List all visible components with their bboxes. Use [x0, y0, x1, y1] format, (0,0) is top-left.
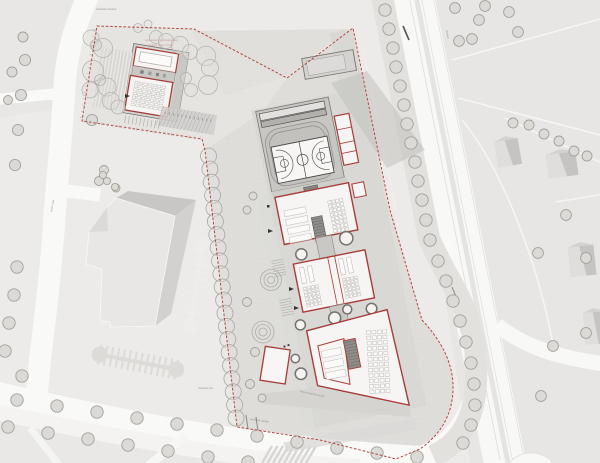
svg-text:xxxxxxxx xxx: xxxxxxxx xxx [198, 387, 214, 390]
svg-text:xxxxxxx xxxxxx: xxxxxxx xxxxxx [96, 7, 117, 11]
svg-text:xxxx xxxxx xx xxxxxxxx xxxx: xxxx xxxxx xx xxxxxxxx xxxx [145, 39, 178, 42]
svg-text:xxxxxxx xxxxx x xxxx: xxxxxxx xxxxx x xxxx [148, 44, 173, 47]
